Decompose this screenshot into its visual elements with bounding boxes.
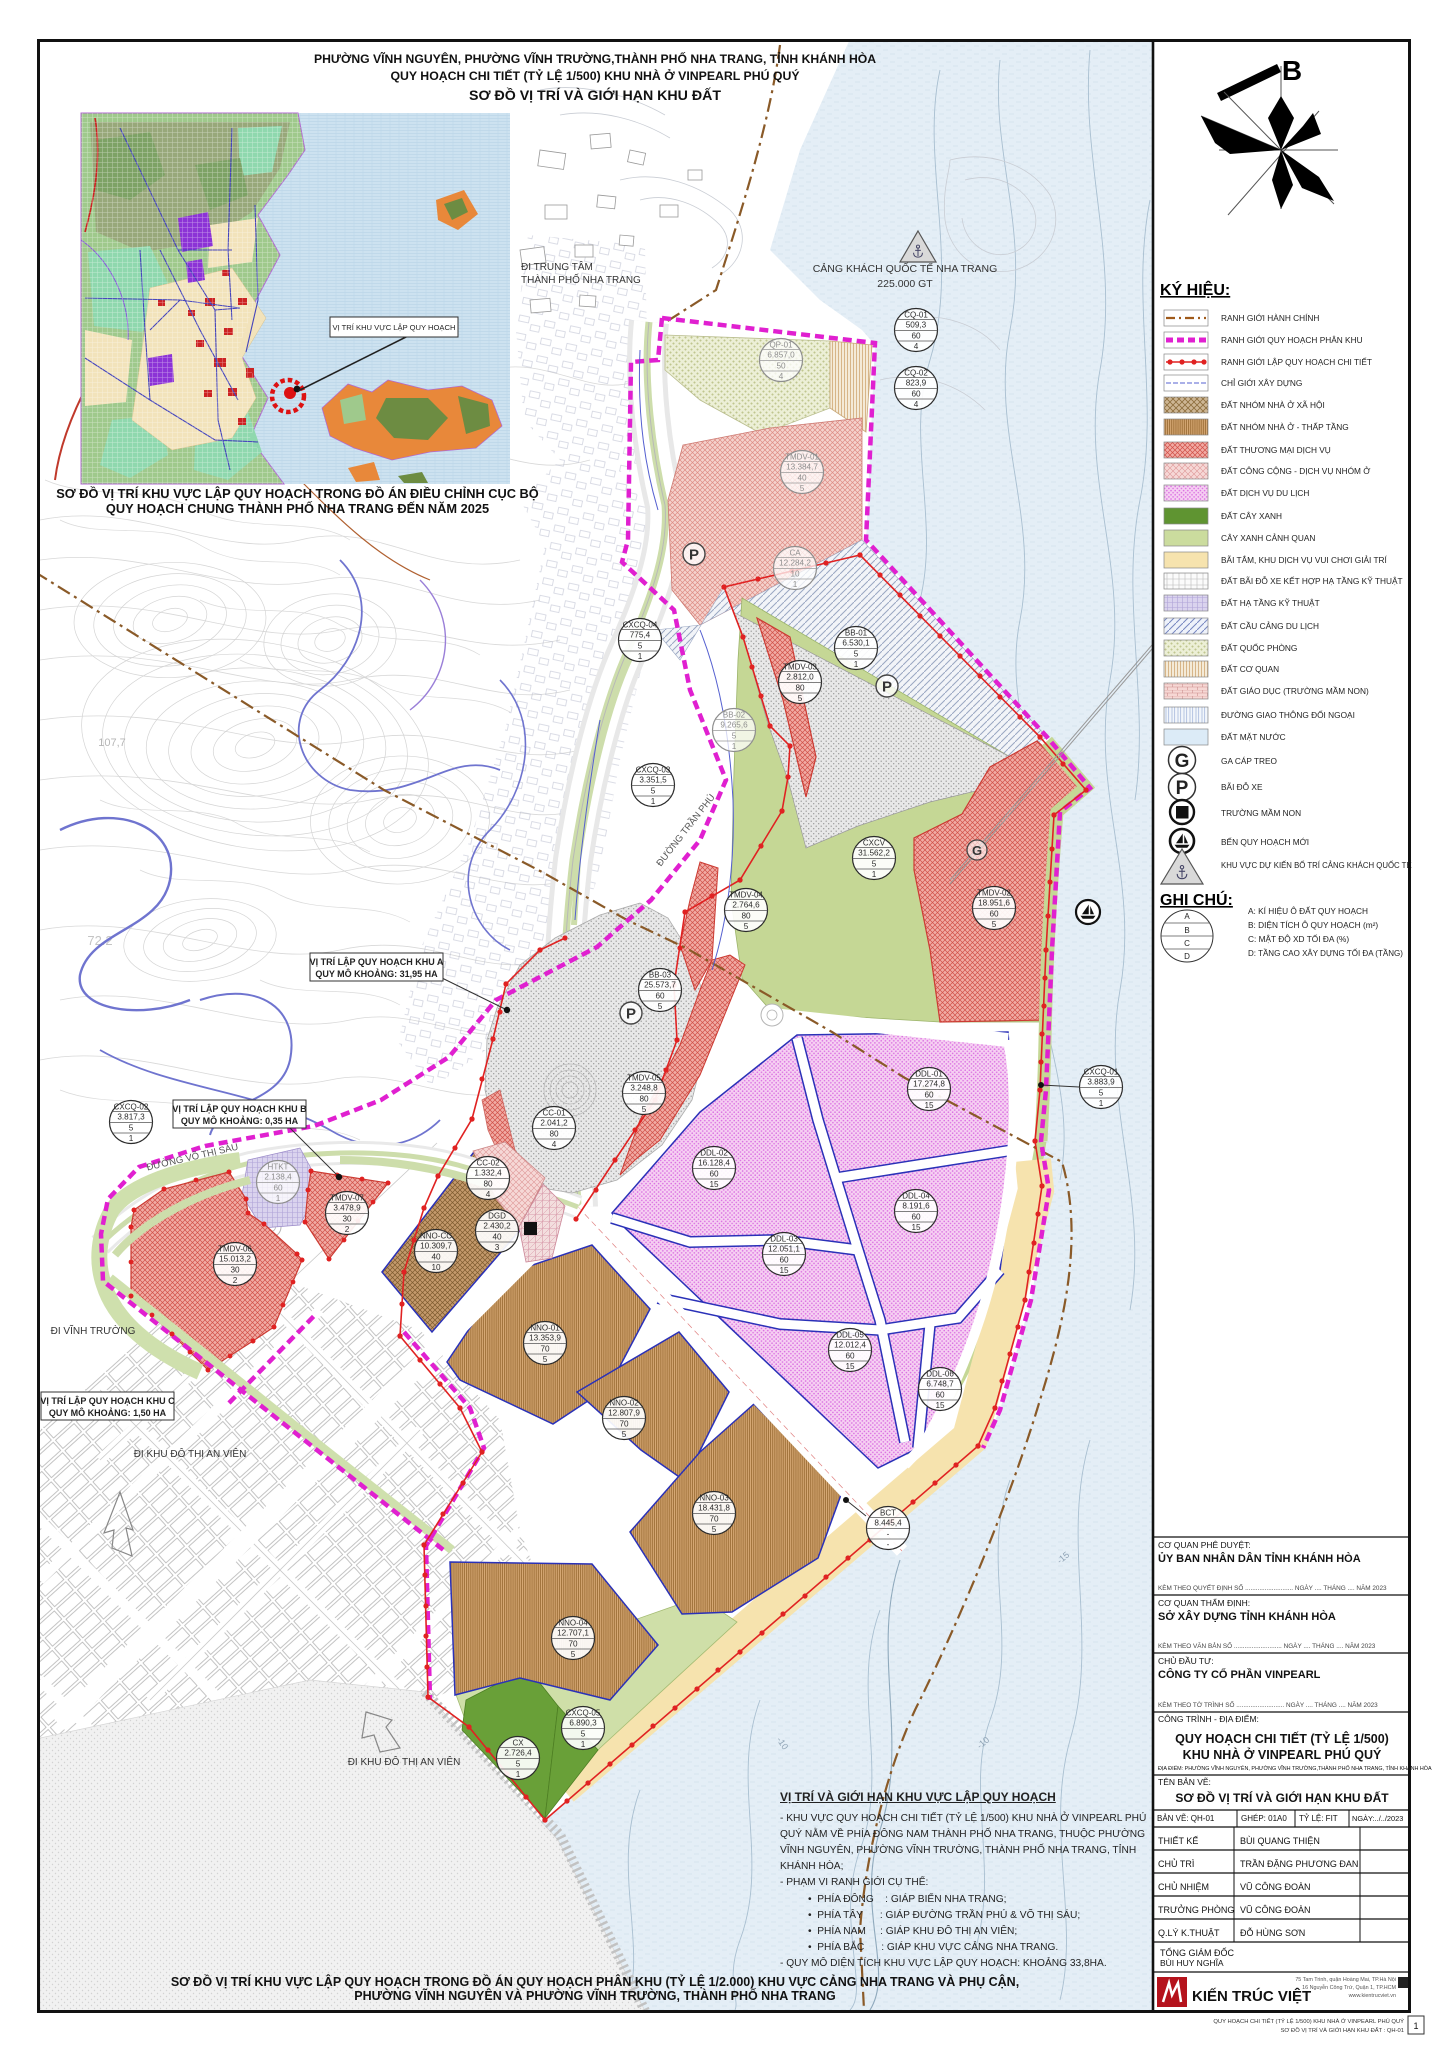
svg-text:CHỈ GIỚI XÂY DỰNG: CHỈ GIỚI XÂY DỰNG — [1221, 377, 1302, 388]
svg-text:12.284,2: 12.284,2 — [779, 559, 811, 568]
svg-text:2.726,4: 2.726,4 — [504, 1749, 532, 1758]
svg-text:60: 60 — [911, 332, 921, 341]
svg-text:6.748,7: 6.748,7 — [926, 1380, 954, 1389]
svg-text:6.857,0: 6.857,0 — [767, 351, 795, 360]
svg-text:2.764,6: 2.764,6 — [732, 901, 760, 910]
svg-text:CẢNG KHÁCH QUỐC TẾ NHA TRANG: CẢNG KHÁCH QUỐC TẾ NHA TRANG — [813, 261, 998, 275]
svg-text:5: 5 — [800, 484, 805, 493]
svg-text:QUY HOẠCH CHI TIẾT (TỶ LỆ 1/50: QUY HOẠCH CHI TIẾT (TỶ LỆ 1/500) — [1175, 1731, 1389, 1746]
svg-text:P: P — [882, 679, 892, 696]
svg-text:C: MẬT ĐỘ XD TỐI ĐA (%): C: MẬT ĐỘ XD TỐI ĐA (%) — [1248, 933, 1349, 944]
svg-text:2.041,2: 2.041,2 — [540, 1119, 568, 1128]
svg-text:ỦY BAN NHÂN DÂN TỈNH KHÁNH HÒA: ỦY BAN NHÂN DÂN TỈNH KHÁNH HÒA — [1158, 1552, 1361, 1565]
svg-text:3.478,9: 3.478,9 — [333, 1204, 361, 1213]
svg-text:KHU NHÀ Ở VINPEARL PHÚ QUÝ: KHU NHÀ Ở VINPEARL PHÚ QUÝ — [1183, 1747, 1382, 1762]
svg-text:D: D — [1184, 952, 1190, 961]
svg-text:1: 1 — [638, 652, 643, 661]
svg-text:QUY HOẠCH CHI TIẾT (TỶ LỆ 1/50: QUY HOẠCH CHI TIẾT (TỶ LỆ 1/500) KHU NHÀ… — [1213, 2017, 1404, 2025]
svg-text:50: 50 — [776, 362, 786, 371]
svg-text:40: 40 — [492, 1233, 502, 1242]
svg-text:4: 4 — [486, 1190, 491, 1199]
svg-text:CXCV: CXCV — [863, 838, 886, 847]
svg-text:CÔNG TY CỔ PHẦN VINPEARL: CÔNG TY CỔ PHẦN VINPEARL — [1158, 1668, 1321, 1681]
svg-text:ĐẤT CÂY XANH: ĐẤT CÂY XANH — [1221, 511, 1282, 521]
svg-text:5: 5 — [1099, 1089, 1104, 1098]
svg-text:12.012,4: 12.012,4 — [834, 1341, 866, 1350]
svg-text:BCT: BCT — [880, 1508, 896, 1517]
svg-text:60: 60 — [911, 1213, 921, 1222]
svg-text:1: 1 — [651, 797, 656, 806]
svg-text:3.883,9: 3.883,9 — [1087, 1078, 1115, 1087]
svg-text:2.138,4: 2.138,4 — [264, 1173, 292, 1182]
svg-text:SƠ ĐỒ VỊ TRÍ VÀ GIỚI HẠN KHU Đ: SƠ ĐỒ VỊ TRÍ VÀ GIỚI HẠN KHU ĐẤT : QH-01 — [1281, 2027, 1404, 2034]
svg-text:-: - — [887, 1530, 890, 1539]
svg-text:NGÀY:../../2023: NGÀY:../../2023 — [1352, 1814, 1403, 1823]
svg-text:ĐỊA ĐIỂM: PHƯỜNG VĨNH NGUYÊN,: ĐỊA ĐIỂM: PHƯỜNG VĨNH NGUYÊN, PHƯỜNG VĨN… — [1158, 1764, 1432, 1772]
svg-text:NNO-01: NNO-01 — [530, 1323, 560, 1332]
svg-text:SƠ ĐỒ VỊ TRÍ VÀ GIỚI HẠN KHU Đ: SƠ ĐỒ VỊ TRÍ VÀ GIỚI HẠN KHU ĐẤT — [1175, 1790, 1389, 1805]
svg-text:P: P — [1176, 778, 1189, 799]
svg-text:HTKT: HTKT — [268, 1162, 289, 1171]
svg-text:C: C — [1184, 939, 1190, 948]
svg-text:31.562,2: 31.562,2 — [858, 849, 890, 858]
svg-text:TRƯỞNG PHÒNG: TRƯỞNG PHÒNG — [1158, 1904, 1234, 1915]
svg-text:P: P — [626, 1006, 636, 1023]
svg-text:5: 5 — [642, 1105, 647, 1114]
svg-text:Q.LÝ K.THUẬT: Q.LÝ K.THUẬT — [1158, 1928, 1220, 1938]
svg-text:NNO-CC: NNO-CC — [420, 1231, 452, 1240]
svg-text:18.951,6: 18.951,6 — [978, 899, 1010, 908]
svg-text:RANH GIỚI QUY HOẠCH PHÂN KHU: RANH GIỚI QUY HOẠCH PHÂN KHU — [1221, 335, 1363, 345]
svg-text:TỔNG GIÁM ĐỐC: TỔNG GIÁM ĐỐC — [1160, 1947, 1235, 1958]
svg-text:775,4: 775,4 — [630, 631, 651, 640]
svg-text:1: 1 — [793, 580, 798, 589]
svg-text:6.530,1: 6.530,1 — [842, 639, 870, 648]
svg-text:QP-01: QP-01 — [769, 340, 793, 349]
svg-text:8.445,4: 8.445,4 — [874, 1519, 902, 1528]
svg-text:TMDV-05: TMDV-05 — [627, 1073, 661, 1082]
svg-text:30: 30 — [342, 1215, 352, 1224]
svg-text:40: 40 — [431, 1253, 441, 1262]
svg-text:5: 5 — [571, 1650, 576, 1659]
svg-text:60: 60 — [911, 390, 921, 399]
svg-text:17.274,8: 17.274,8 — [913, 1080, 945, 1089]
svg-text:15: 15 — [709, 1180, 719, 1189]
svg-text:3: 3 — [495, 1243, 500, 1252]
svg-text:A: A — [1184, 912, 1190, 921]
svg-text:1: 1 — [1413, 2021, 1418, 2031]
svg-text:KÈM THEO TỜ TRÌNH SỐ .........: KÈM THEO TỜ TRÌNH SỐ ...................… — [1158, 1699, 1378, 1709]
svg-text:BB-01: BB-01 — [845, 628, 868, 637]
svg-text:QUY MÔ KHOẢNG: 1,50 HA: QUY MÔ KHOẢNG: 1,50 HA — [49, 1407, 167, 1418]
svg-text:GHI CHÚ:: GHI CHÚ: — [1160, 890, 1233, 909]
svg-text:G: G — [1175, 751, 1190, 772]
svg-text:VỊ TRÍ KHU VỰC LẬP QUY HOẠCH: VỊ TRÍ KHU VỰC LẬP QUY HOẠCH — [333, 323, 456, 332]
svg-text:B: B — [1282, 55, 1302, 86]
svg-text:CXCQ-02: CXCQ-02 — [114, 1102, 149, 1111]
svg-text:CA: CA — [789, 548, 801, 557]
svg-text:5: 5 — [543, 1355, 548, 1364]
svg-text:CQ-01: CQ-01 — [904, 310, 928, 319]
svg-text:3.248,8: 3.248,8 — [630, 1084, 658, 1093]
svg-text:107,7: 107,7 — [98, 737, 126, 749]
svg-text:TMDV-01: TMDV-01 — [785, 452, 819, 461]
svg-text:15.013,2: 15.013,2 — [219, 1255, 251, 1264]
svg-text:CÔNG TRÌNH - ĐỊA ĐIỂM:: CÔNG TRÌNH - ĐỊA ĐIỂM: — [1158, 1713, 1259, 1724]
svg-text:BÃI TẮM, KHU DỊCH VỤ VUI CHƠI: BÃI TẮM, KHU DỊCH VỤ VUI CHƠI GIẢI TRÍ — [1221, 554, 1388, 565]
svg-text:KÝ HIỆU:: KÝ HIỆU: — [1160, 280, 1230, 299]
svg-text:8.191,6: 8.191,6 — [902, 1202, 930, 1211]
svg-text:70: 70 — [540, 1345, 550, 1354]
svg-text:TMDV-04: TMDV-04 — [729, 890, 763, 899]
svg-text:823,9: 823,9 — [906, 379, 927, 388]
svg-text:60: 60 — [273, 1184, 283, 1193]
svg-text:CQ-02: CQ-02 — [904, 368, 928, 377]
svg-text:80: 80 — [795, 684, 805, 693]
svg-text:CÂY XANH CẢNH QUAN: CÂY XANH CẢNH QUAN — [1221, 532, 1315, 543]
svg-text:TMDV-07: TMDV-07 — [330, 1193, 364, 1202]
svg-text:5: 5 — [712, 1525, 717, 1534]
svg-text:80: 80 — [639, 1095, 649, 1104]
svg-text:A: KÍ HIỆU Ô ĐẤT QUY HOẠCH: A: KÍ HIỆU Ô ĐẤT QUY HOẠCH — [1248, 906, 1368, 916]
svg-text:60: 60 — [779, 1256, 789, 1265]
svg-text:3.817,3: 3.817,3 — [117, 1113, 145, 1122]
svg-text:12.707,1: 12.707,1 — [557, 1629, 589, 1638]
svg-text:18.431,8: 18.431,8 — [698, 1504, 730, 1513]
svg-text:TMDV-03: TMDV-03 — [783, 662, 817, 671]
svg-text:CHỦ NHIỆM: CHỦ NHIỆM — [1158, 1881, 1209, 1892]
svg-text:KIẾN TRÚC VIỆT: KIẾN TRÚC VIỆT — [1192, 1987, 1311, 2005]
svg-text:16.128,4: 16.128,4 — [698, 1159, 730, 1168]
svg-text:DDL-03: DDL-03 — [770, 1234, 798, 1243]
svg-text:60: 60 — [935, 1391, 945, 1400]
svg-text:10: 10 — [431, 1263, 441, 1272]
svg-text:5: 5 — [622, 1430, 627, 1439]
svg-text:VŨ CÔNG ĐOÀN: VŨ CÔNG ĐOÀN — [1240, 1882, 1311, 1892]
svg-text:4: 4 — [914, 342, 919, 351]
svg-text:1: 1 — [872, 870, 877, 879]
svg-text:5: 5 — [798, 694, 803, 703]
svg-text:13.353,9: 13.353,9 — [529, 1334, 561, 1343]
svg-text:4: 4 — [552, 1140, 557, 1149]
svg-text:ĐẤT GIÁO DỤC (TRƯỜNG MẦM NON): ĐẤT GIÁO DỤC (TRƯỜNG MẦM NON) — [1221, 686, 1369, 696]
svg-text:15: 15 — [911, 1223, 921, 1232]
svg-text:TÊN BẢN VẼ:: TÊN BẢN VẼ: — [1158, 1776, 1211, 1787]
svg-text:GA CÁP TREO: GA CÁP TREO — [1221, 756, 1277, 766]
svg-text:BÃI ĐỖ XE: BÃI ĐỖ XE — [1221, 781, 1263, 792]
svg-text:10.309,7: 10.309,7 — [420, 1242, 452, 1251]
svg-text:THÀNH PHỐ NHA TRANG: THÀNH PHỐ NHA TRANG — [521, 272, 641, 286]
svg-text:15: 15 — [935, 1401, 945, 1410]
svg-text:ĐI KHU ĐÔ THỊ AN VIÊN: ĐI KHU ĐÔ THỊ AN VIÊN — [348, 1755, 461, 1768]
svg-text:BẾN QUY HOẠCH MỚI: BẾN QUY HOẠCH MỚI — [1221, 837, 1309, 847]
svg-text:CC-02: CC-02 — [476, 1158, 500, 1167]
svg-text:1: 1 — [516, 1770, 521, 1779]
svg-text:DDL-05: DDL-05 — [836, 1330, 864, 1339]
svg-text:CXCQ-04: CXCQ-04 — [623, 620, 658, 629]
svg-text:ĐẤT NHÓM NHÀ Ở XÃ HỘI: ĐẤT NHÓM NHÀ Ở XÃ HỘI — [1221, 399, 1325, 410]
svg-text:16 Nguyễn Công Trứ, Quận 1, TP: 16 Nguyễn Công Trứ, Quận 1, TP.HCM — [1302, 1984, 1396, 1991]
svg-text:2.430,2: 2.430,2 — [483, 1222, 511, 1231]
svg-text:60: 60 — [655, 992, 665, 1001]
svg-text:CHỦ ĐẦU TƯ:: CHỦ ĐẦU TƯ: — [1158, 1655, 1214, 1666]
svg-text:ĐI TRUNG TÂM: ĐI TRUNG TÂM — [521, 260, 593, 273]
svg-text:5: 5 — [658, 1002, 663, 1011]
svg-text:D: TẦNG CAO XÂY DỰNG TỐI ĐA (T: D: TẦNG CAO XÂY DỰNG TỐI ĐA (TẦNG) — [1248, 948, 1403, 958]
svg-text:12.807,9: 12.807,9 — [608, 1409, 640, 1418]
svg-text:GHÉP: 01A0: GHÉP: 01A0 — [1241, 1814, 1287, 1823]
svg-text:BẢN VẼ: QH-01: BẢN VẼ: QH-01 — [1157, 1814, 1215, 1823]
svg-text:80: 80 — [483, 1180, 493, 1189]
svg-text:ĐI VĨNH TRƯỜNG: ĐI VĨNH TRƯỜNG — [51, 1324, 136, 1337]
svg-text:4: 4 — [914, 400, 919, 409]
svg-text:1: 1 — [854, 660, 859, 669]
svg-text:1: 1 — [129, 1134, 134, 1143]
svg-text:BB-03: BB-03 — [649, 970, 672, 979]
svg-text:G: G — [972, 843, 982, 858]
svg-text:VỊ TRÍ LẬP QUY HOẠCH KHU B: VỊ TRÍ LẬP QUY HOẠCH KHU B — [172, 1103, 307, 1114]
svg-text:ĐẤT MẶT NƯỚC: ĐẤT MẶT NƯỚC — [1221, 732, 1286, 742]
svg-text:1.332,4: 1.332,4 — [474, 1169, 502, 1178]
svg-text:TRƯỜNG MẦM NON: TRƯỜNG MẦM NON — [1221, 808, 1301, 818]
svg-text:509,3: 509,3 — [906, 321, 927, 330]
svg-text:75 Tam Trinh, quận Hoàng Mai,: 75 Tam Trinh, quận Hoàng Mai, TP.Hà Nội — [1295, 1977, 1396, 1983]
svg-text:2: 2 — [233, 1276, 238, 1285]
svg-text:70: 70 — [619, 1420, 629, 1429]
svg-text:KÈM THEO QUYẾT ĐỊNH SỐ .......: KÈM THEO QUYẾT ĐỊNH SỐ .................… — [1158, 1582, 1387, 1592]
svg-text:BÙI HUY NGHĨA: BÙI HUY NGHĨA — [1160, 1958, 1224, 1968]
svg-text:2.812,0: 2.812,0 — [786, 673, 814, 682]
svg-text:40: 40 — [797, 474, 807, 483]
svg-text:NNO-02: NNO-02 — [609, 1398, 639, 1407]
svg-text:60: 60 — [845, 1352, 855, 1361]
svg-text:ĐẤT BÃI ĐỖ XE KẾT HỢP HẠ TẦNG: ĐẤT BÃI ĐỖ XE KẾT HỢP HẠ TẦNG KỸ THUẬT — [1221, 575, 1403, 586]
svg-text:ĐẤT CẦU CẢNG DU LỊCH: ĐẤT CẦU CẢNG DU LỊCH — [1221, 620, 1319, 631]
svg-text:CC-01: CC-01 — [542, 1108, 566, 1117]
svg-text:ĐẤT CÔNG CỘNG - DỊCH VỤ NHÓM Ở: ĐẤT CÔNG CỘNG - DỊCH VỤ NHÓM Ở — [1221, 465, 1370, 476]
svg-text:CXCQ-01: CXCQ-01 — [1084, 1067, 1119, 1076]
svg-text:VỊ TRÍ LẬP QUY HOẠCH KHU C: VỊ TRÍ LẬP QUY HOẠCH KHU C — [40, 1395, 175, 1406]
svg-text:5: 5 — [581, 1730, 586, 1739]
svg-text:6.890,3: 6.890,3 — [569, 1719, 597, 1728]
svg-text:NNO-04: NNO-04 — [558, 1618, 588, 1627]
svg-text:60: 60 — [924, 1091, 934, 1100]
svg-text:CƠ QUAN PHÊ DUYỆT:: CƠ QUAN PHÊ DUYỆT: — [1158, 1540, 1251, 1550]
svg-text:60: 60 — [709, 1170, 719, 1179]
svg-text:3.351,5: 3.351,5 — [639, 776, 667, 785]
svg-text:1: 1 — [732, 742, 737, 751]
svg-text:ĐẤT NHÓM NHÀ Ở - THẤP TẦNG: ĐẤT NHÓM NHÀ Ở - THẤP TẦNG — [1221, 421, 1349, 432]
svg-text:5: 5 — [732, 732, 737, 741]
svg-text:ĐI KHU ĐÔ THỊ AN VIÊN: ĐI KHU ĐÔ THỊ AN VIÊN — [134, 1447, 247, 1460]
svg-text:VỊ TRÍ LẬP QUY HOẠCH KHU A: VỊ TRÍ LẬP QUY HOẠCH KHU A — [310, 956, 444, 967]
svg-text:15: 15 — [779, 1266, 789, 1275]
svg-text:DDL-04: DDL-04 — [902, 1191, 930, 1200]
svg-text:13.384,7: 13.384,7 — [786, 463, 818, 472]
svg-text:5: 5 — [992, 920, 997, 929]
svg-text:NNO-03: NNO-03 — [699, 1493, 729, 1502]
svg-text:KHU VỰC DỰ KIẾN BỐ TRÍ CẢNG KH: KHU VỰC DỰ KIẾN BỐ TRÍ CẢNG KHÁCH QUỐC T… — [1221, 860, 1412, 870]
svg-text:B: DIỆN TÍCH Ô QUY HOẠCH (m²): B: DIỆN TÍCH Ô QUY HOẠCH (m²) — [1248, 920, 1378, 930]
svg-text:ĐẤT THƯƠNG MẠI DỊCH VỤ: ĐẤT THƯƠNG MẠI DỊCH VỤ — [1221, 445, 1331, 455]
svg-text:225.000 GT: 225.000 GT — [877, 278, 933, 290]
svg-text:www.kientrucviet.vn: www.kientrucviet.vn — [1348, 1993, 1396, 1999]
svg-text:DDL-06: DDL-06 — [926, 1369, 954, 1378]
svg-text:RANH GIỚI LẬP QUY HOẠCH CHI TI: RANH GIỚI LẬP QUY HOẠCH CHI TIẾT — [1221, 357, 1372, 367]
svg-text:9.265,6: 9.265,6 — [720, 721, 748, 730]
svg-text:BÙI QUANG THIỆN: BÙI QUANG THIỆN — [1240, 1836, 1320, 1846]
svg-text:80: 80 — [741, 912, 751, 921]
svg-text:TMDV-02: TMDV-02 — [977, 888, 1011, 897]
svg-text:4: 4 — [779, 372, 784, 381]
svg-text:5: 5 — [651, 787, 656, 796]
svg-text:12.051,1: 12.051,1 — [768, 1245, 800, 1254]
svg-text:CHỦ TRÌ: CHỦ TRÌ — [1158, 1858, 1194, 1869]
svg-text:5: 5 — [744, 922, 749, 931]
svg-text:10: 10 — [790, 570, 800, 579]
svg-text:TMDV-06: TMDV-06 — [218, 1244, 252, 1253]
svg-text:RANH GIỚI HÀNH CHÍNH: RANH GIỚI HÀNH CHÍNH — [1221, 313, 1319, 323]
svg-text:TỶ LỆ: FIT: TỶ LỆ: FIT — [1299, 1814, 1338, 1823]
svg-text:-: - — [887, 1540, 890, 1549]
svg-text:1: 1 — [1099, 1099, 1104, 1108]
svg-text:QUY MÔ KHOẢNG: 31,95 HA: QUY MÔ KHOẢNG: 31,95 HA — [315, 968, 438, 979]
svg-text:DDL-02: DDL-02 — [700, 1148, 728, 1157]
svg-text:1: 1 — [581, 1740, 586, 1749]
svg-text:THIẾT KẾ: THIẾT KẾ — [1158, 1836, 1198, 1846]
svg-text:5: 5 — [872, 860, 877, 869]
svg-text:CXCQ-05: CXCQ-05 — [566, 1708, 601, 1717]
svg-text:15: 15 — [845, 1362, 855, 1371]
svg-text:70: 70 — [709, 1515, 719, 1524]
svg-text:70: 70 — [568, 1640, 578, 1649]
svg-text:5: 5 — [638, 642, 643, 651]
svg-text:5: 5 — [516, 1760, 521, 1769]
svg-text:P: P — [689, 547, 699, 564]
svg-text:60: 60 — [989, 910, 999, 919]
svg-text:B: B — [1184, 926, 1189, 935]
svg-text:ĐẤT DỊCH VỤ DU LỊCH: ĐẤT DỊCH VỤ DU LỊCH — [1221, 488, 1309, 498]
svg-text:80: 80 — [549, 1130, 559, 1139]
svg-text:BB-02: BB-02 — [723, 710, 746, 719]
svg-text:SỞ XÂY DỰNG TỈNH KHÁNH HÒA: SỞ XÂY DỰNG TỈNH KHÁNH HÒA — [1158, 1610, 1336, 1623]
svg-text:ĐẤT HẠ TẦNG KỸ THUẬT: ĐẤT HẠ TẦNG KỸ THUẬT — [1221, 598, 1320, 608]
svg-text:15: 15 — [924, 1101, 934, 1110]
svg-text:DDL-01: DDL-01 — [915, 1069, 943, 1078]
svg-text:VŨ CÔNG ĐOÀN: VŨ CÔNG ĐOÀN — [1240, 1905, 1311, 1915]
svg-text:CXCQ-03: CXCQ-03 — [636, 765, 671, 774]
svg-text:TRẦN ĐẶNG PHƯƠNG ĐAN: TRẦN ĐẶNG PHƯƠNG ĐAN — [1240, 1859, 1358, 1869]
svg-text:CƠ QUAN THẨM ĐỊNH:: CƠ QUAN THẨM ĐỊNH: — [1158, 1597, 1250, 1608]
svg-text:25.573,7: 25.573,7 — [644, 981, 676, 990]
svg-text:QUY MÔ KHOẢNG: 0,35 HA: QUY MÔ KHOẢNG: 0,35 HA — [181, 1115, 299, 1126]
svg-text:5: 5 — [854, 650, 859, 659]
svg-text:ĐẤT CƠ QUAN: ĐẤT CƠ QUAN — [1221, 664, 1279, 674]
svg-text:5: 5 — [129, 1124, 134, 1133]
svg-text:CX: CX — [512, 1738, 524, 1747]
svg-text:30: 30 — [230, 1266, 240, 1275]
svg-text:ĐƯỜNG GIAO THÔNG ĐỐI NGOẠI: ĐƯỜNG GIAO THÔNG ĐỐI NGOẠI — [1221, 709, 1355, 720]
svg-text:ĐẤT QUỐC PHÒNG: ĐẤT QUỐC PHÒNG — [1221, 642, 1297, 653]
svg-text:1: 1 — [276, 1194, 281, 1203]
svg-text:2: 2 — [345, 1225, 350, 1234]
svg-text:DGD: DGD — [488, 1211, 506, 1220]
svg-text:ĐỖ HÙNG SƠN: ĐỖ HÙNG SƠN — [1240, 1927, 1305, 1938]
svg-text:KÈM THEO VĂN BẢN SỐ ..........: KÈM THEO VĂN BẢN SỐ ....................… — [1158, 1640, 1376, 1650]
